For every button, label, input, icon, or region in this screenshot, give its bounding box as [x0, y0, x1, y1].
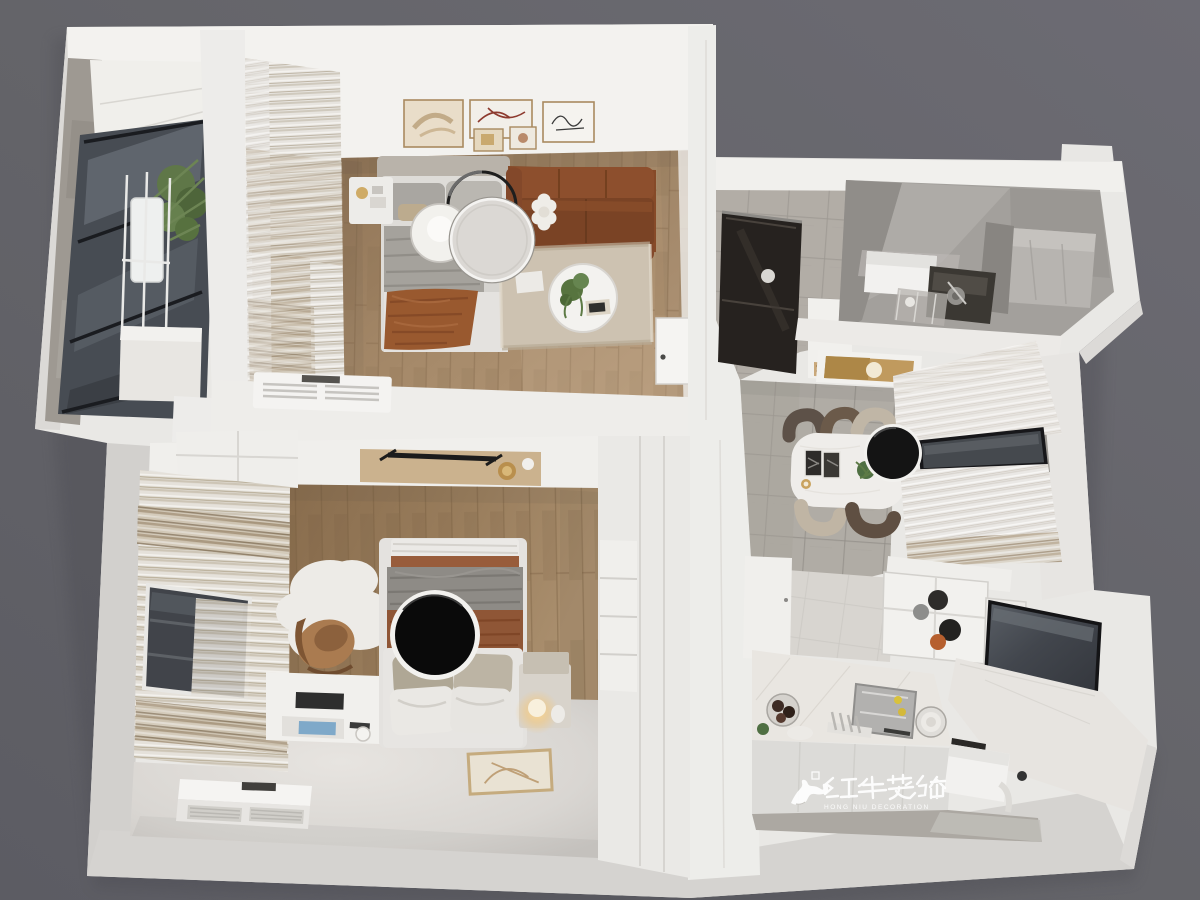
svg-text:HONG NIU DECORATION: HONG NIU DECORATION: [824, 804, 930, 811]
